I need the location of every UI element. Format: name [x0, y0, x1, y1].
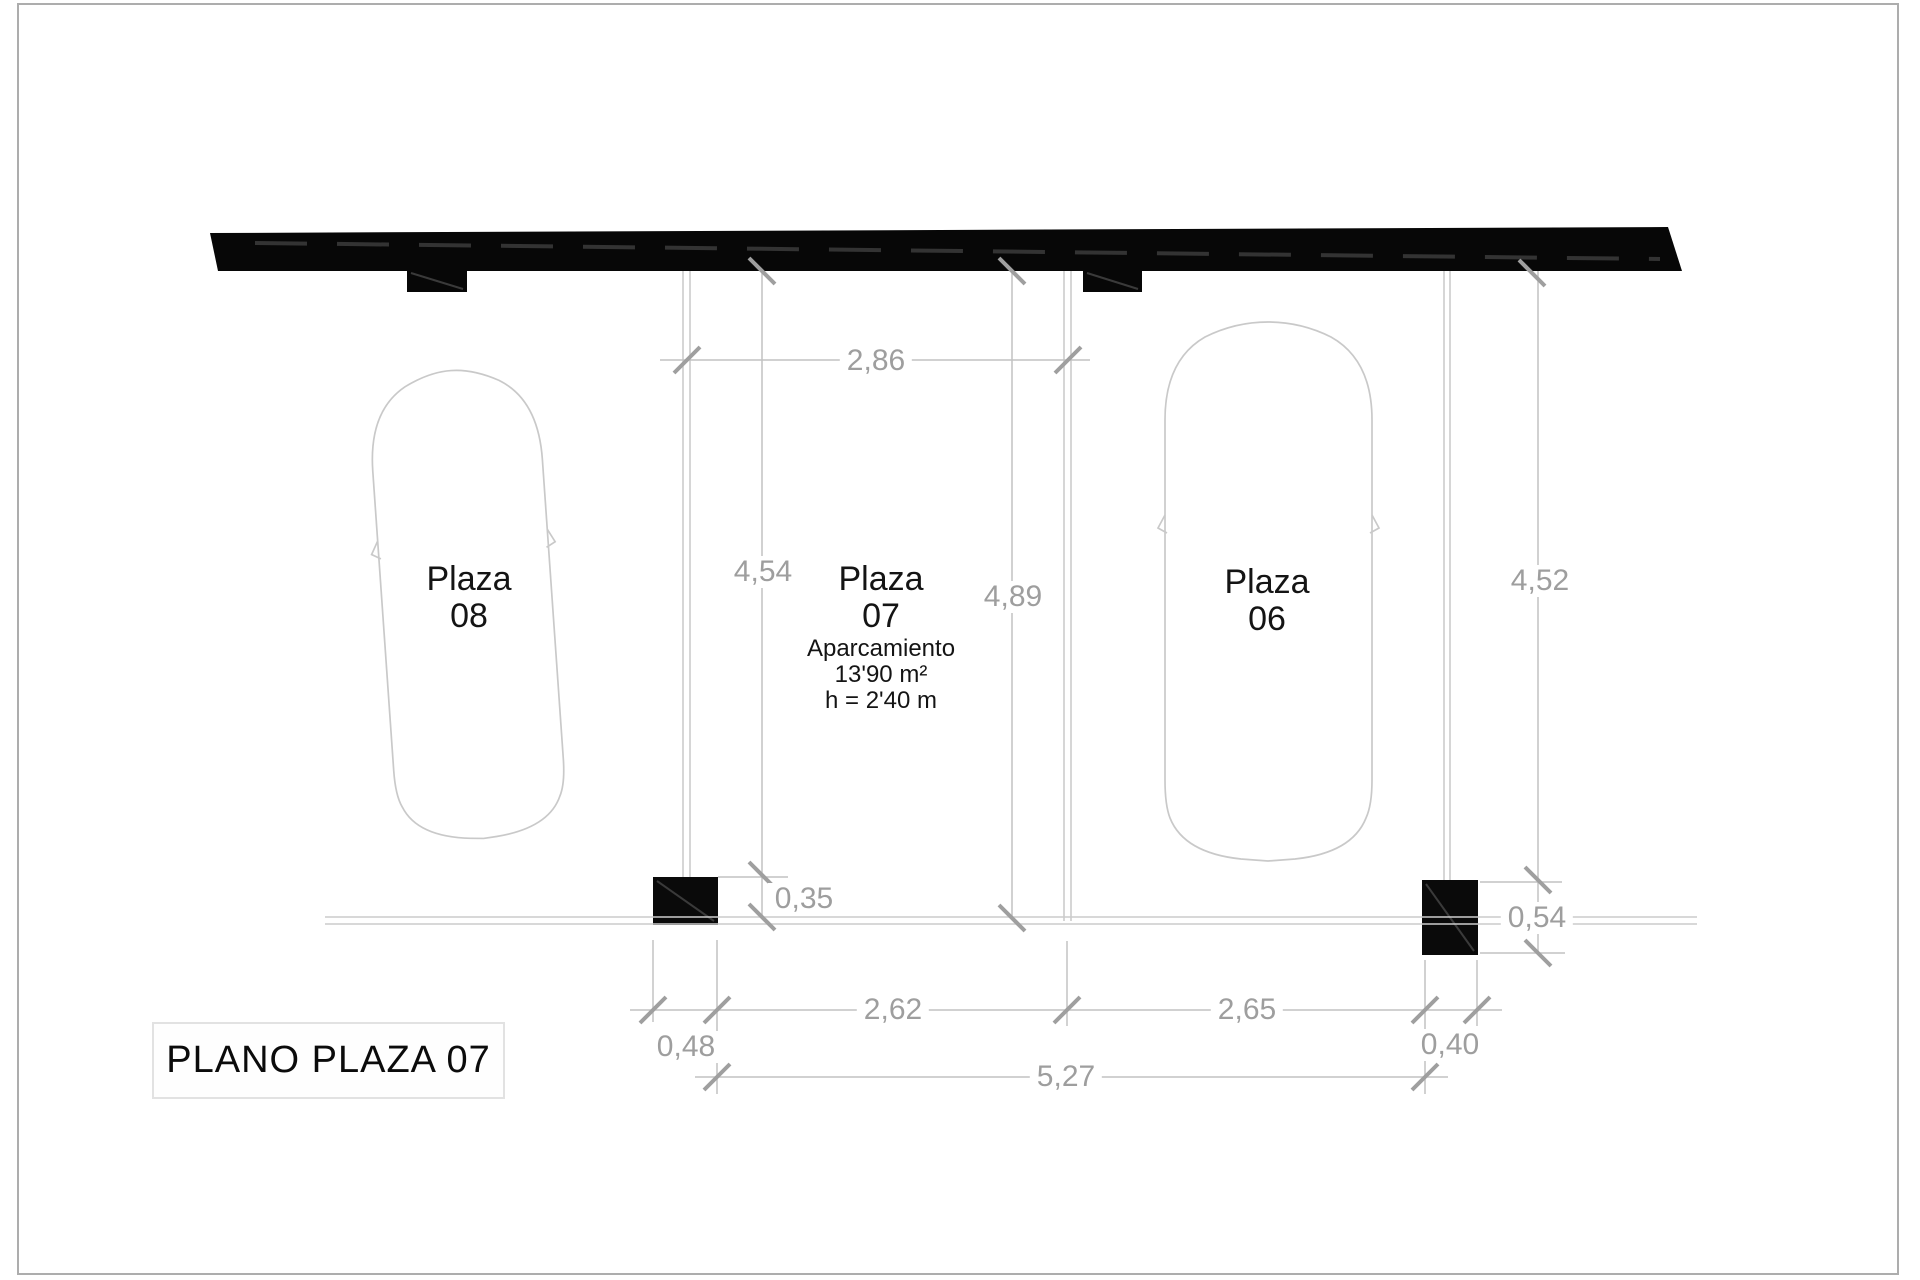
dim-span-right: 2,65 [1211, 994, 1283, 1026]
dim-depth-center: 4,89 [977, 581, 1049, 613]
dim-top-width: 2,86 [840, 345, 912, 377]
wall-column-mid [1083, 269, 1142, 292]
plaza-boundary-lines [683, 271, 1450, 921]
plaza-number: 08 [426, 598, 511, 635]
dimension-lines [630, 271, 1565, 1094]
dim-offset-right: 0,40 [1414, 1029, 1486, 1061]
dim-pillar-left-height: 0,35 [768, 883, 840, 915]
dim-total-span: 5,27 [1030, 1061, 1102, 1093]
plaza-06-label: Plaza 06 [1224, 564, 1309, 638]
plaza-area-label: 13'90 m² [807, 662, 955, 687]
dimension-ticks [640, 258, 1551, 1090]
plaza-07-label: Plaza 07 Aparcamiento 13'90 m² h = 2'40 … [807, 561, 955, 713]
plaza-number: 06 [1224, 601, 1309, 638]
dim-depth-right: 4,52 [1504, 565, 1576, 597]
pillar-left [653, 877, 718, 925]
plaza-08-label: Plaza 08 [426, 561, 511, 635]
wall-column-left [407, 269, 467, 292]
title-block: PLANO PLAZA 07 [152, 1022, 505, 1099]
wall [210, 227, 1682, 271]
plaza-height-label: h = 2'40 m [807, 688, 955, 713]
floor-plan-canvas: 2,86 4,54 4,89 4,52 0,35 0,54 0,48 2,62 … [0, 0, 1920, 1280]
plaza-name: Plaza [426, 561, 511, 598]
dim-offset-left: 0,48 [650, 1031, 722, 1063]
plaza-name: Plaza [807, 561, 955, 598]
drawing-title: PLANO PLAZA 07 [166, 1039, 491, 1082]
dim-pillar-right-height: 0,54 [1501, 902, 1573, 934]
dim-span-left: 2,62 [857, 994, 929, 1026]
plaza-use-label: Aparcamiento [807, 636, 955, 661]
dim-depth-left: 4,54 [727, 556, 799, 588]
plaza-name: Plaza [1224, 564, 1309, 601]
plaza-number: 07 [807, 598, 955, 635]
